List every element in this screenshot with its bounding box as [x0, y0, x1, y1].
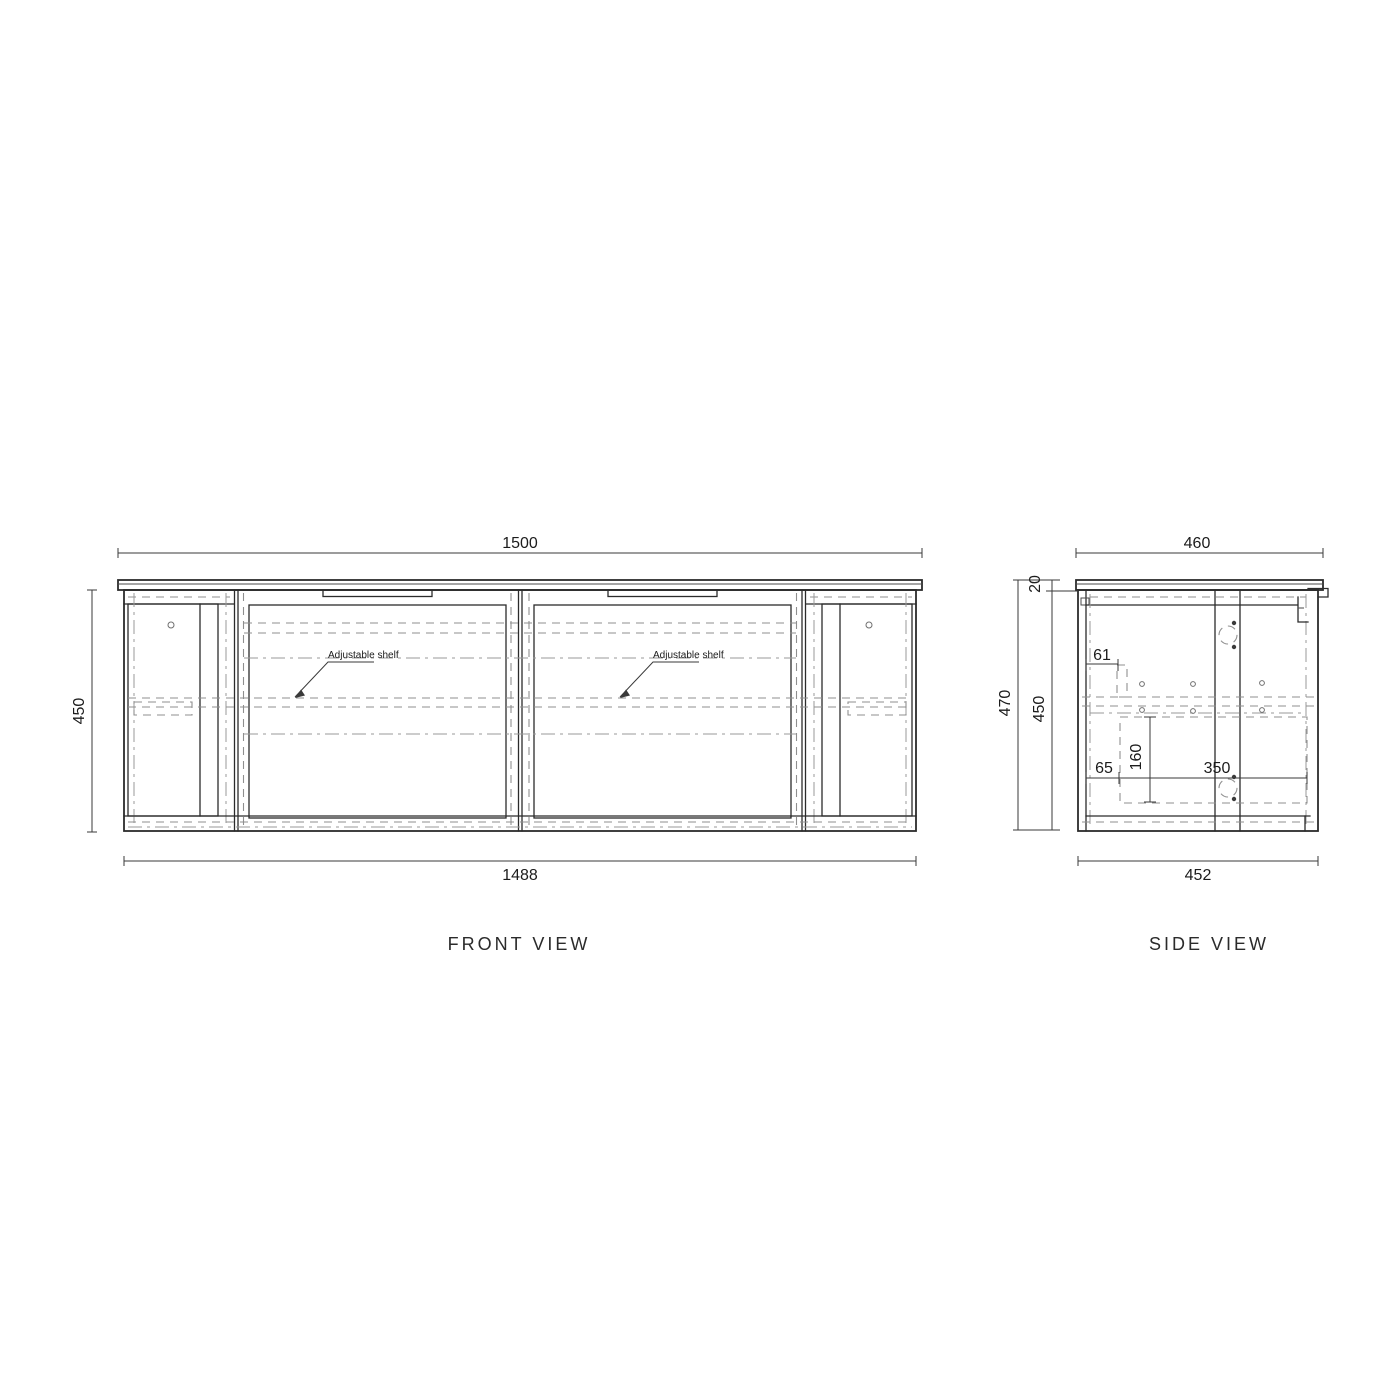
side-dim-450-20: 450 20 [1027, 575, 1078, 830]
front-view-label: FRONT VIEW [448, 934, 591, 954]
drawing-svg: Adjustable shelf Adjustable shelf 1500 1… [0, 0, 1400, 1400]
side-dim-160: 160 [1128, 717, 1156, 802]
dim-width-bottom: 1488 [502, 867, 538, 884]
dim-height-overall: 470 [997, 690, 1014, 717]
side-dim-61: 61 [1086, 647, 1118, 671]
side-cabinet-outline [1078, 590, 1318, 831]
left-end-hidden-rail [134, 702, 192, 715]
front-right-end-section [814, 593, 912, 828]
front-left-end-section [128, 593, 226, 828]
side-hardware [1140, 621, 1265, 801]
middle-left-door-pull [323, 590, 432, 597]
dim-height-carcass: 450 [1031, 696, 1048, 723]
dim-recess-height: 160 [1128, 744, 1145, 771]
front-view-drawing: Adjustable shelf Adjustable shelf 1500 1… [71, 535, 922, 954]
front-middle-doors [244, 590, 797, 828]
side-dim-65-350: 65 350 [1086, 760, 1307, 784]
hinge-cup-bottom [1219, 779, 1237, 797]
dim-top-thickness: 20 [1027, 575, 1044, 593]
middle-right-door [534, 605, 791, 818]
side-structure [1081, 590, 1314, 831]
shelf-label-left: Adjustable shelf [328, 650, 399, 661]
middle-left-door [249, 605, 506, 818]
front-dim-450: 450 [71, 590, 97, 832]
side-dim-460: 460 [1076, 535, 1323, 558]
dim-depth-bottom: 452 [1185, 867, 1212, 884]
side-view-drawing: 460 452 470 450 20 61 [997, 535, 1328, 954]
dim-height-front: 450 [71, 698, 88, 725]
front-cabinet-outline [124, 590, 916, 831]
front-top-rails [124, 597, 916, 604]
right-end-hidden-rail [848, 702, 906, 715]
front-dim-1500: 1500 [118, 535, 922, 558]
side-view-label: SIDE VIEW [1149, 934, 1269, 954]
right-door-handle-hole [866, 622, 872, 628]
front-top-step [1081, 598, 1089, 605]
dim-depth-top: 460 [1184, 535, 1211, 552]
side-countertop [1076, 580, 1328, 597]
leader-arrowhead [295, 690, 305, 699]
dim-recess-width: 350 [1204, 760, 1231, 777]
leader-arrowhead [620, 690, 630, 699]
left-end-door [128, 604, 218, 816]
shelf-callout-left: Adjustable shelf [295, 650, 399, 698]
right-end-door [822, 604, 912, 816]
shelf-callout-right: Adjustable shelf [620, 650, 724, 698]
side-dim-470: 470 [997, 580, 1060, 830]
dim-width-top: 1500 [502, 535, 538, 552]
shelf-label-right: Adjustable shelf [653, 650, 724, 661]
technical-drawing-canvas: Adjustable shelf Adjustable shelf 1500 1… [0, 0, 1400, 1400]
dim-recess-front: 65 [1095, 760, 1113, 777]
front-hidden-lines [124, 623, 916, 827]
front-dividers [235, 590, 806, 831]
hinge-cup-top [1219, 626, 1237, 644]
front-countertop [118, 580, 922, 590]
left-door-handle-hole [168, 622, 174, 628]
dim-rail-offset: 61 [1093, 647, 1111, 664]
middle-right-door-pull [608, 590, 717, 597]
front-dim-1488: 1488 [124, 856, 916, 884]
side-dim-452: 452 [1078, 856, 1318, 884]
